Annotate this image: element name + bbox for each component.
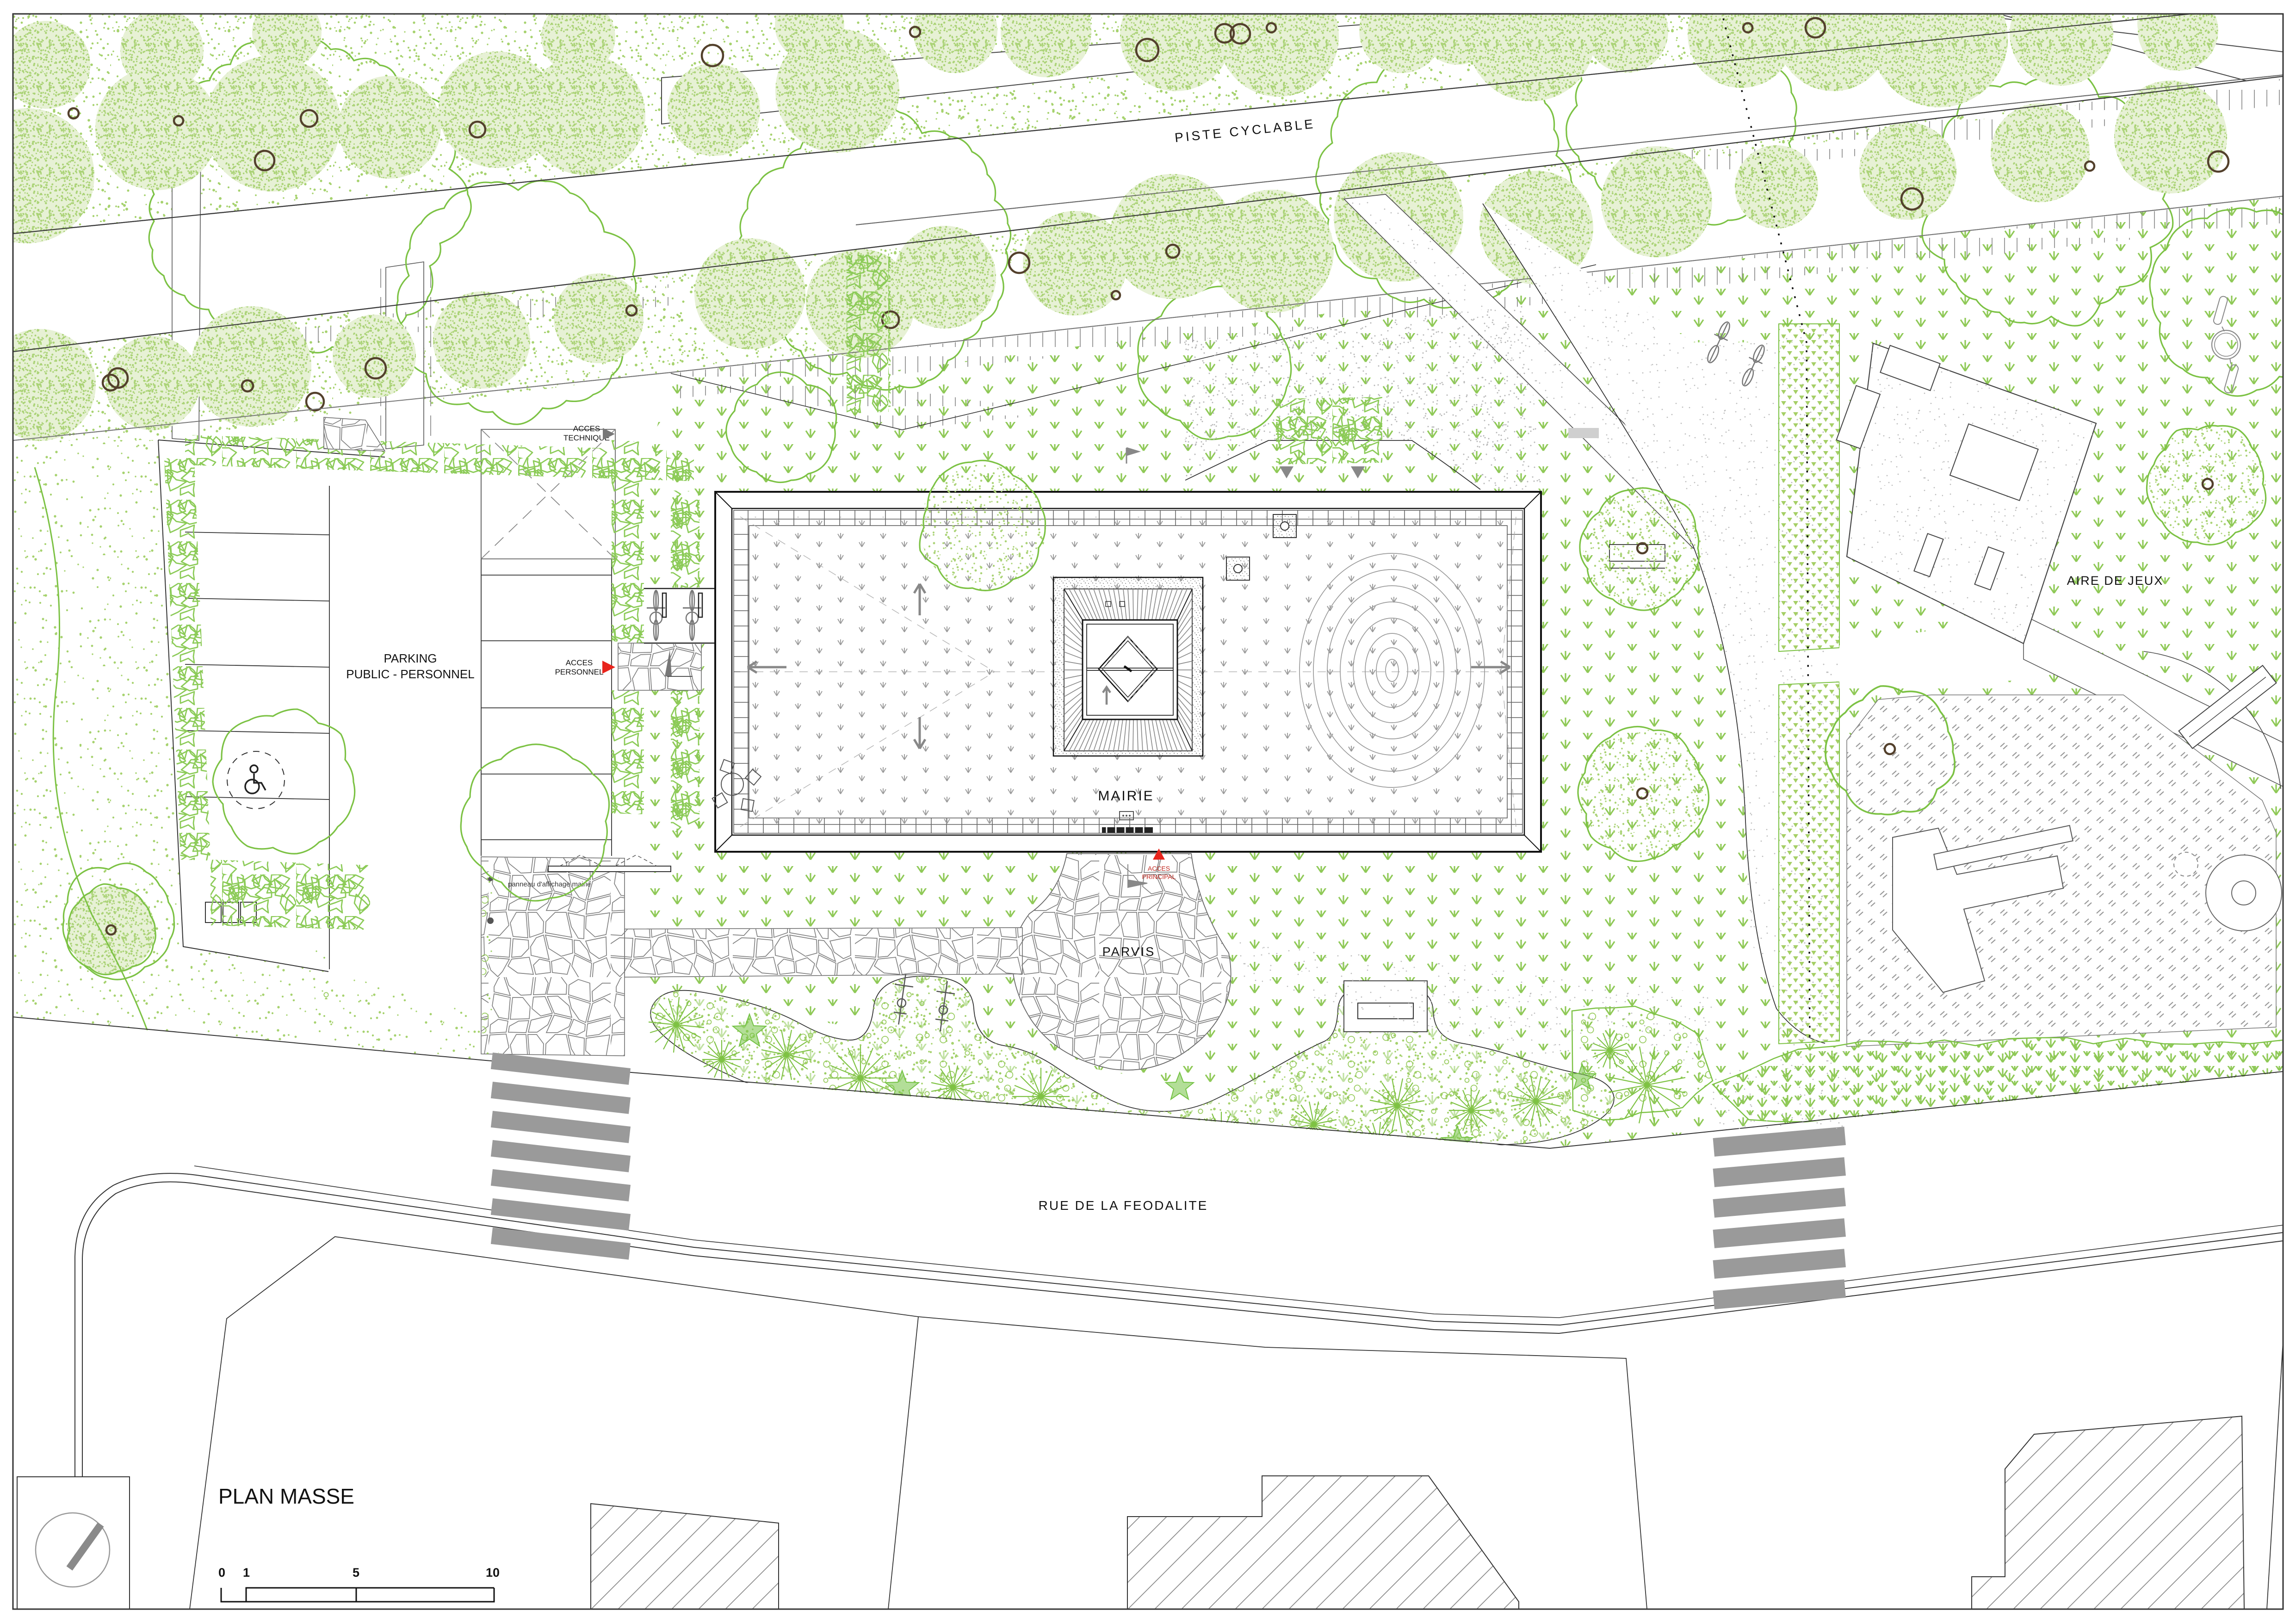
svg-text:0: 0	[218, 1566, 225, 1580]
svg-text:PUBLIC - PERSONNEL: PUBLIC - PERSONNEL	[346, 667, 474, 681]
svg-text:10: 10	[486, 1566, 500, 1580]
svg-text:PERSONNEL: PERSONNEL	[555, 668, 604, 676]
svg-text:ACCES: ACCES	[566, 658, 593, 667]
svg-text:PRINCIPAL: PRINCIPAL	[1142, 873, 1176, 880]
svg-text:MAIRIE: MAIRIE	[1098, 788, 1154, 804]
svg-text:5: 5	[353, 1566, 359, 1580]
svg-text:PARVIS: PARVIS	[1102, 945, 1156, 959]
svg-text:PARKING: PARKING	[384, 651, 437, 665]
svg-text:ACCES: ACCES	[1148, 865, 1170, 872]
svg-text:ACCES: ACCES	[573, 424, 600, 433]
svg-text:PLAN MASSE: PLAN MASSE	[218, 1484, 354, 1508]
svg-text:AIRE DE JEUX: AIRE DE JEUX	[2067, 574, 2164, 588]
svg-text:1: 1	[243, 1566, 250, 1580]
svg-text:RUE DE LA FEODALITE: RUE DE LA FEODALITE	[1039, 1198, 1208, 1213]
